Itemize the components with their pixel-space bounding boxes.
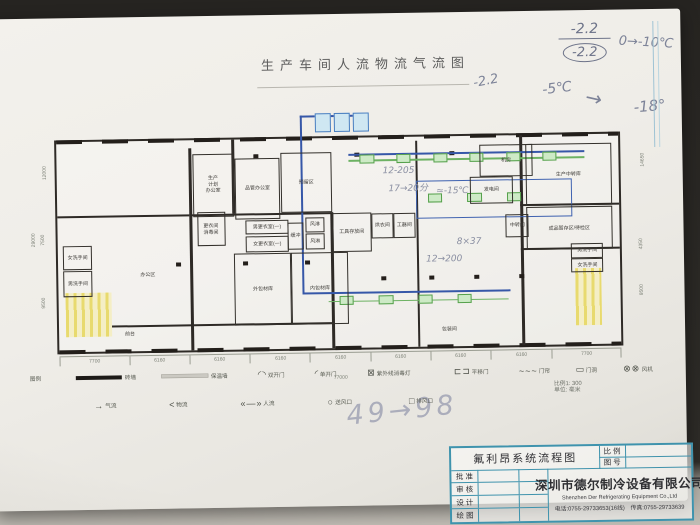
legend-item-label: 气流 <box>105 401 116 410</box>
dimension-label: 6160 <box>154 358 165 364</box>
room-label: 内包材库 <box>290 285 351 292</box>
handwritten-fraction: -2.2 -2.2 <box>558 18 611 63</box>
handwritten-temp-range: 0→-10℃ <box>618 34 674 52</box>
room: 前台 <box>117 326 143 343</box>
legend-symbol: ⊗⊗ <box>623 363 640 374</box>
legend-item-label: 人流 <box>263 398 274 407</box>
handwritten-plan-note: 12→200 <box>426 254 462 265</box>
legend-item-label: 门洞 <box>586 365 597 374</box>
legend-item: <物流 <box>169 396 196 411</box>
signature-blank <box>479 508 520 522</box>
dimension-label: 6160 <box>395 354 406 360</box>
drawing-title: 生产车间人流物流气流图 <box>261 52 470 74</box>
room-label: 风淋 <box>306 238 325 245</box>
room: 男更衣室(一) <box>246 220 289 235</box>
room-label: 男更衣室(一) <box>245 224 290 231</box>
room-label: 男洗手间 <box>570 247 603 254</box>
handwritten-plan-note: 17→20分 <box>388 181 428 195</box>
unit-value: 单位: 毫米 <box>554 387 582 394</box>
legend-item: →气流 <box>94 397 125 412</box>
legend-symbol-ins <box>162 374 208 378</box>
room-label: 外包材库 <box>233 286 294 293</box>
air-handling-unit <box>314 113 331 132</box>
dimension-cell: 7700 <box>59 356 129 366</box>
room-label: 烘衣间 <box>371 222 394 229</box>
dimension-label: 9500 <box>41 298 47 309</box>
room: 女洗手间 <box>63 246 92 270</box>
dimension-label: 6160 <box>214 357 225 363</box>
dimension-cell: 6160 <box>491 350 551 360</box>
air-handling-unit <box>352 112 369 131</box>
legend-symbol: ◜◝ <box>258 369 267 380</box>
dimension-label: 4350 <box>638 238 644 249</box>
dimension-label: 7500 <box>40 235 46 246</box>
room: 预留区 <box>280 152 332 214</box>
room-label: 品管办公室 <box>234 185 282 192</box>
legend-symbol: < <box>169 399 175 409</box>
handwritten-value: -2.2 <box>571 21 599 37</box>
room-label: 工具存放间 <box>332 229 372 236</box>
dimension-label: 9500 <box>639 284 645 295</box>
room-label: 生产中转库 <box>522 170 615 178</box>
handwritten-left-temp: -2.2 <box>472 71 500 91</box>
dimension-cell: 6160 <box>189 355 249 365</box>
dimension-label: 6160 <box>335 355 346 361</box>
legend-item-label: 物流 <box>176 400 187 409</box>
legend-item: ◜◝双开门 <box>258 367 298 383</box>
legend-item: 保温墙 <box>162 368 241 384</box>
legend-symbol: ○ <box>327 397 334 407</box>
legend-item-label: 送风口 <box>335 397 352 406</box>
room-label: 工器间 <box>393 222 416 229</box>
dimension-label: 7700 <box>89 359 100 365</box>
legend-item: «—»人流 <box>240 395 283 411</box>
signature-label: 审 核 <box>452 483 479 495</box>
paper-sheet: 生产车间人流物流气流图 -2.2 -2.2 0→-10℃ -2.2 -5℃ → … <box>0 9 688 512</box>
scale-note: 比例1: 300 单位: 毫米 <box>554 380 582 393</box>
legend-symbol: □ <box>409 395 416 405</box>
column-marker <box>381 276 386 280</box>
room: 品管办公室 <box>235 158 281 220</box>
signature-row: 绘 图 <box>452 508 548 523</box>
room-label: 前台 <box>116 331 144 338</box>
room: 缓冲 <box>288 223 304 250</box>
legend-item: ⊠紫外线消毒灯 <box>367 364 437 380</box>
dimension-total: 29000 <box>31 234 37 248</box>
room: 内包材库 <box>291 252 349 324</box>
company-block: 深圳市德尔制冷设备有限公司 Shenzhen Der Refrigerating… <box>547 466 692 520</box>
room-label: 中转间 <box>506 222 529 229</box>
dimension-label: 12000 <box>42 166 48 180</box>
dimension-cell: 6160 <box>370 352 430 362</box>
handwritten-plan-note: 8×37 <box>457 237 482 247</box>
legend-item: □排风口 <box>409 392 447 408</box>
room: 风淋 <box>306 217 325 233</box>
room: 男洗手间 <box>63 271 92 298</box>
legend-item-label: 紫外线消毒灯 <box>377 368 411 377</box>
room-label: 包装间 <box>428 326 471 333</box>
handwritten-circled-value: -2.2 <box>563 43 607 63</box>
room-label: 办公区 <box>86 271 210 279</box>
signature-label: 绘 图 <box>452 509 479 522</box>
company-name-en: Shenzhen Der Refrigerating Equipment Co.… <box>562 493 677 501</box>
legend-item-label: 砖墙 <box>125 372 136 381</box>
legend-item: ▭门洞 <box>576 362 607 377</box>
dimension-label: 6160 <box>516 352 527 358</box>
drawing-number-label: 图 号 <box>599 456 626 467</box>
fan-coil-unit <box>396 154 411 164</box>
company-name-cn: 深圳市德尔制冷设备有限公司 <box>535 472 700 494</box>
handwritten-plan-note: ≈-15℃ <box>436 186 469 197</box>
legend-item: ◜单开门 <box>315 366 351 382</box>
legend-item-label: 排风口 <box>416 396 433 405</box>
signature-label: 设 计 <box>452 496 479 508</box>
legend-title: 图例 <box>30 374 41 383</box>
legend-item-label: 门帘 <box>539 366 550 375</box>
room-label: 成品暂存区/待检区 <box>523 224 616 232</box>
legend-item-label: 保温墙 <box>211 371 228 380</box>
room-label: 预留区 <box>279 179 333 186</box>
dimension-cell: 6160 <box>310 353 370 363</box>
room: 男洗手间 <box>571 243 604 258</box>
fan-coil-unit <box>379 295 394 305</box>
legend-item: ⊗⊗风机 <box>623 361 661 377</box>
signature-blank <box>479 495 520 508</box>
fan-coil-unit <box>433 153 448 163</box>
column-marker <box>474 274 479 278</box>
room-label: 女洗手间 <box>63 255 93 262</box>
legend-item: ○送风口 <box>327 394 365 410</box>
room: 办公区 <box>91 245 204 306</box>
legend-symbol-thick <box>76 375 122 380</box>
scale-label: 比 例 <box>599 445 626 456</box>
legend-symbol: «—» <box>240 398 262 408</box>
handwritten-from-temp: -5℃ <box>541 79 572 98</box>
room: 生产中转库 <box>525 143 612 206</box>
legend-symbol: ⊠ <box>367 367 376 378</box>
legend-symbol: → <box>94 400 104 410</box>
dimension-cell: 6160 <box>430 351 490 361</box>
fan-coil-unit <box>418 294 433 304</box>
air-handling-unit <box>333 113 350 132</box>
dimension-cell: 6160 <box>129 356 189 366</box>
room: 发电间 <box>470 176 513 204</box>
column-marker <box>429 275 434 279</box>
handwritten-arrow-icon: → <box>583 84 605 111</box>
dimension-label: 6160 <box>455 353 466 359</box>
legend-symbol: ▭ <box>576 364 586 375</box>
room-label: 风淋 <box>306 222 325 229</box>
room: 女更衣室(一) <box>246 235 289 252</box>
room: 工器间 <box>393 212 416 237</box>
legend-symbol: ◜ <box>315 368 320 379</box>
legend-item-label: 风机 <box>641 364 652 373</box>
room: 包装间 <box>430 321 470 338</box>
stairs-highlight <box>575 268 602 325</box>
room: 中转间 <box>506 214 529 237</box>
handwritten-to-temp: -18° <box>633 96 666 117</box>
signature-label: 批 准 <box>451 470 478 482</box>
photo-of-drawing: 生产车间人流物流气流图 -2.2 -2.2 0→-10℃ -2.2 -5℃ → … <box>0 0 700 525</box>
room: 女洗手间 <box>571 258 604 273</box>
dimension-cell: 6160 <box>250 354 310 364</box>
legend-item: ⊏⊐平移门 <box>454 363 502 379</box>
room: 外包材库 <box>234 253 292 325</box>
title-underline <box>257 84 469 88</box>
signature-blank <box>478 469 519 482</box>
room-label: 发电间 <box>469 187 514 194</box>
column-marker <box>519 274 524 278</box>
room: 工具存放间 <box>333 212 372 252</box>
room-label: 女更衣室(一) <box>245 241 290 248</box>
handwritten-plan-note: 12-205 <box>382 166 414 176</box>
room-label: 缓冲 <box>288 233 303 239</box>
room: 烘衣间 <box>371 213 394 238</box>
legend-item-label: 单开门 <box>320 369 337 378</box>
legend-item: 砖墙 <box>76 369 145 385</box>
dimension-label: 14650 <box>640 153 646 167</box>
legend: 图例 砖墙保温墙◜◝双开门◜单开门⊠紫外线消毒灯⊏⊐平移门~~~门帘▭门洞⊗⊗风… <box>30 362 611 427</box>
top-wall-segments <box>56 132 618 145</box>
title-block: 氟利昂系统流程图 比 例 图 号 批 准审 核设 计绘 图 深圳市德尔制冷设备有… <box>449 442 694 524</box>
company-contact: 电话:0755-29733653(16线) 传真:0755-29733639 <box>555 501 685 512</box>
room: 风淋 <box>306 233 325 250</box>
room-label: 女洗手间 <box>571 262 604 269</box>
fraction-bar <box>559 38 611 40</box>
floor-plan: 12-205 17→20分 8×37 12→200 ≈-15℃ 77006160… <box>54 132 623 355</box>
fan-coil-unit <box>458 293 473 303</box>
legend-item: ~~~门帘 <box>519 363 559 379</box>
legend-item-label: 双开门 <box>268 370 285 379</box>
legend-symbol: ⊏⊐ <box>454 366 471 377</box>
legend-symbol: ~~~ <box>519 365 538 375</box>
fan-coil-unit <box>360 154 375 164</box>
signature-blank <box>479 482 520 495</box>
interior-wall <box>415 141 421 347</box>
room-label: 男洗手间 <box>63 281 93 288</box>
room-label: 生产 计划 办公室 <box>192 175 236 194</box>
room: 生产 计划 办公室 <box>192 153 234 217</box>
room: 更衣间 消毒间 <box>197 212 225 246</box>
legend-item-label: 平移门 <box>472 367 489 376</box>
interior-wall <box>57 214 189 218</box>
dimension-label: 7700 <box>581 351 592 357</box>
dimension-label: 6160 <box>275 356 286 362</box>
room-label: 更衣间 消毒间 <box>197 223 226 236</box>
dimension-cell: 7700 <box>551 349 622 359</box>
